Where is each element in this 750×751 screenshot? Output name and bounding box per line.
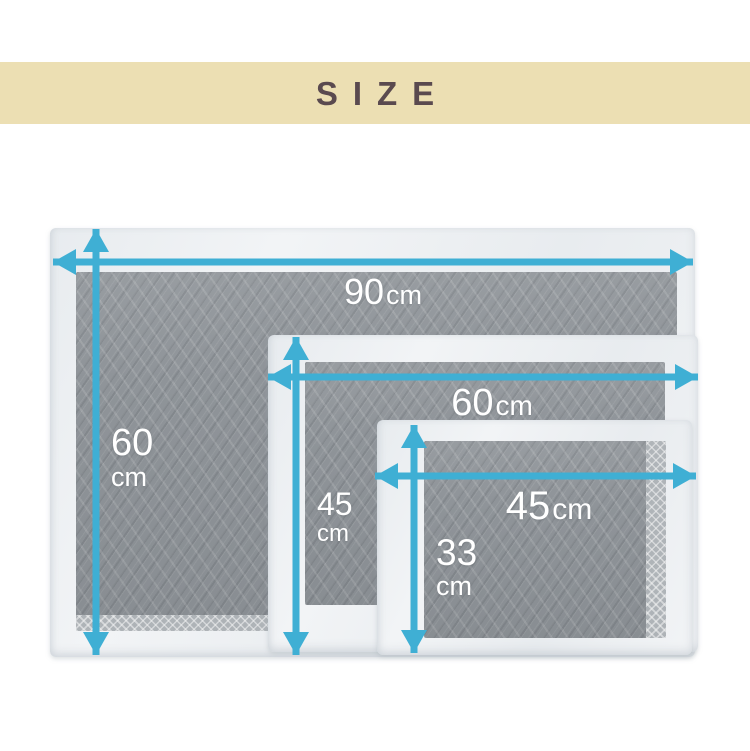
size-diagram: SIZE 90cm 60cm (0, 0, 750, 751)
large-width-value: 90 (344, 274, 384, 310)
small-width-value: 45 (506, 486, 551, 526)
large-height-label: 60cm (111, 424, 153, 491)
page-title: SIZE (301, 77, 449, 110)
large-width-label: 90cm (344, 274, 422, 310)
medium-width-label: 60cm (451, 384, 533, 422)
medium-height-value: 45 (317, 488, 353, 520)
large-width-unit: cm (386, 282, 422, 309)
large-height-arrow-icon (83, 229, 109, 655)
large-height-unit: cm (111, 464, 147, 491)
small-height-unit: cm (436, 573, 472, 600)
medium-width-unit: cm (495, 392, 532, 420)
large-height-value: 60 (111, 424, 153, 462)
small-width-unit: cm (552, 495, 592, 525)
small-width-label: 45cm (506, 486, 593, 526)
medium-height-unit: cm (317, 522, 349, 546)
medium-height-arrow-icon (283, 337, 309, 655)
small-height-value: 33 (436, 534, 477, 571)
small-height-label: 33cm (436, 534, 477, 600)
title-band: SIZE (0, 62, 750, 124)
small-height-arrow-icon (401, 425, 427, 653)
medium-height-label: 45cm (317, 488, 353, 546)
medium-width-value: 60 (451, 384, 493, 422)
